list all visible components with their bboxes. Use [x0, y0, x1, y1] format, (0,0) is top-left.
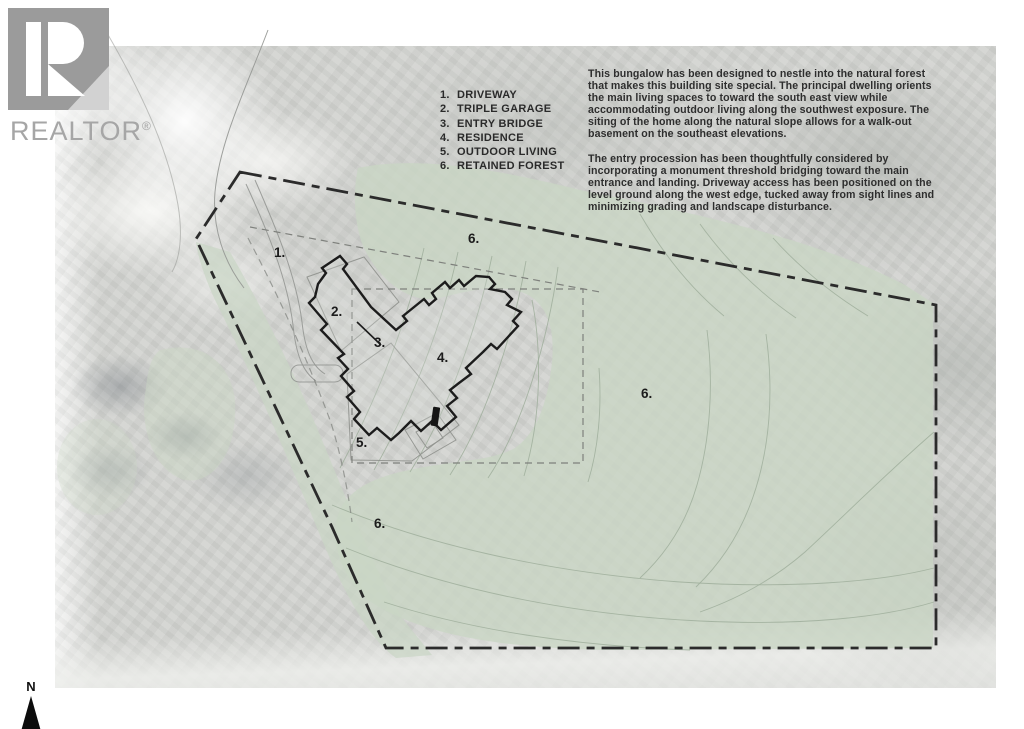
description-paragraph-1: This bungalow has been designed to nestl… — [588, 68, 944, 141]
legend-label: TRIPLE GARAGE — [457, 104, 551, 115]
legend-number: 2. — [440, 104, 457, 115]
legend-item-entry-bridge: 3. ENTRY BRIDGE — [440, 119, 590, 130]
registered-trademark-symbol: ® — [142, 119, 152, 133]
legend-item-retained-forest: 6. RETAINED FOREST — [440, 161, 590, 172]
legend-label: DRIVEWAY — [457, 90, 517, 101]
plan-label-forest-east: 6. — [641, 386, 652, 401]
legend-label: RESIDENCE — [457, 133, 524, 144]
realtor-wordmark-text: REALTOR — [10, 116, 142, 146]
legend-item-driveway: 1. DRIVEWAY — [440, 90, 590, 101]
plan-label-forest-north: 6. — [468, 231, 479, 246]
legend-label: RETAINED FOREST — [457, 161, 565, 172]
realtor-logo-block-r-icon — [8, 8, 109, 110]
north-indicator: N — [17, 680, 45, 729]
legend-item-residence: 4. RESIDENCE — [440, 133, 590, 144]
legend-item-triple-garage: 2. TRIPLE GARAGE — [440, 104, 590, 115]
description-paragraph-2: The entry procession has been thoughtful… — [588, 153, 944, 213]
legend-number: 5. — [440, 147, 457, 158]
plan-legend: 1. DRIVEWAY 2. TRIPLE GARAGE 3. ENTRY BR… — [440, 90, 590, 176]
north-label: N — [17, 680, 45, 694]
forest-overlay-left-edge-patch — [57, 419, 137, 515]
forest-overlay-west-patch — [144, 347, 235, 480]
legend-item-outdoor-living: 5. OUTDOOR LIVING — [440, 147, 590, 158]
legend-label: ENTRY BRIDGE — [457, 119, 543, 130]
plan-label-driveway: 1. — [274, 245, 285, 260]
project-description: This bungalow has been designed to nestl… — [588, 68, 944, 225]
north-arrow-icon — [18, 696, 44, 729]
legend-number: 1. — [440, 90, 457, 101]
plan-label-garage: 2. — [331, 304, 342, 319]
plan-label-outdoor-living: 5. — [356, 435, 367, 450]
plan-label-residence: 4. — [437, 350, 448, 365]
legend-number: 3. — [440, 119, 457, 130]
realtor-wordmark: REALTOR® — [10, 116, 190, 147]
site-plan-page: 1. 2. 3. 4. 5. 6. 6. 6. REALTOR® 1. DRIV… — [0, 0, 1024, 729]
legend-label: OUTDOOR LIVING — [457, 147, 557, 158]
plan-label-forest-south: 6. — [374, 516, 385, 531]
realtor-logo: REALTOR® — [8, 8, 109, 115]
legend-number: 4. — [440, 133, 457, 144]
road-and-driveway-lines — [107, 30, 343, 382]
legend-number: 6. — [440, 161, 457, 172]
plan-label-entry-bridge: 3. — [374, 335, 385, 350]
